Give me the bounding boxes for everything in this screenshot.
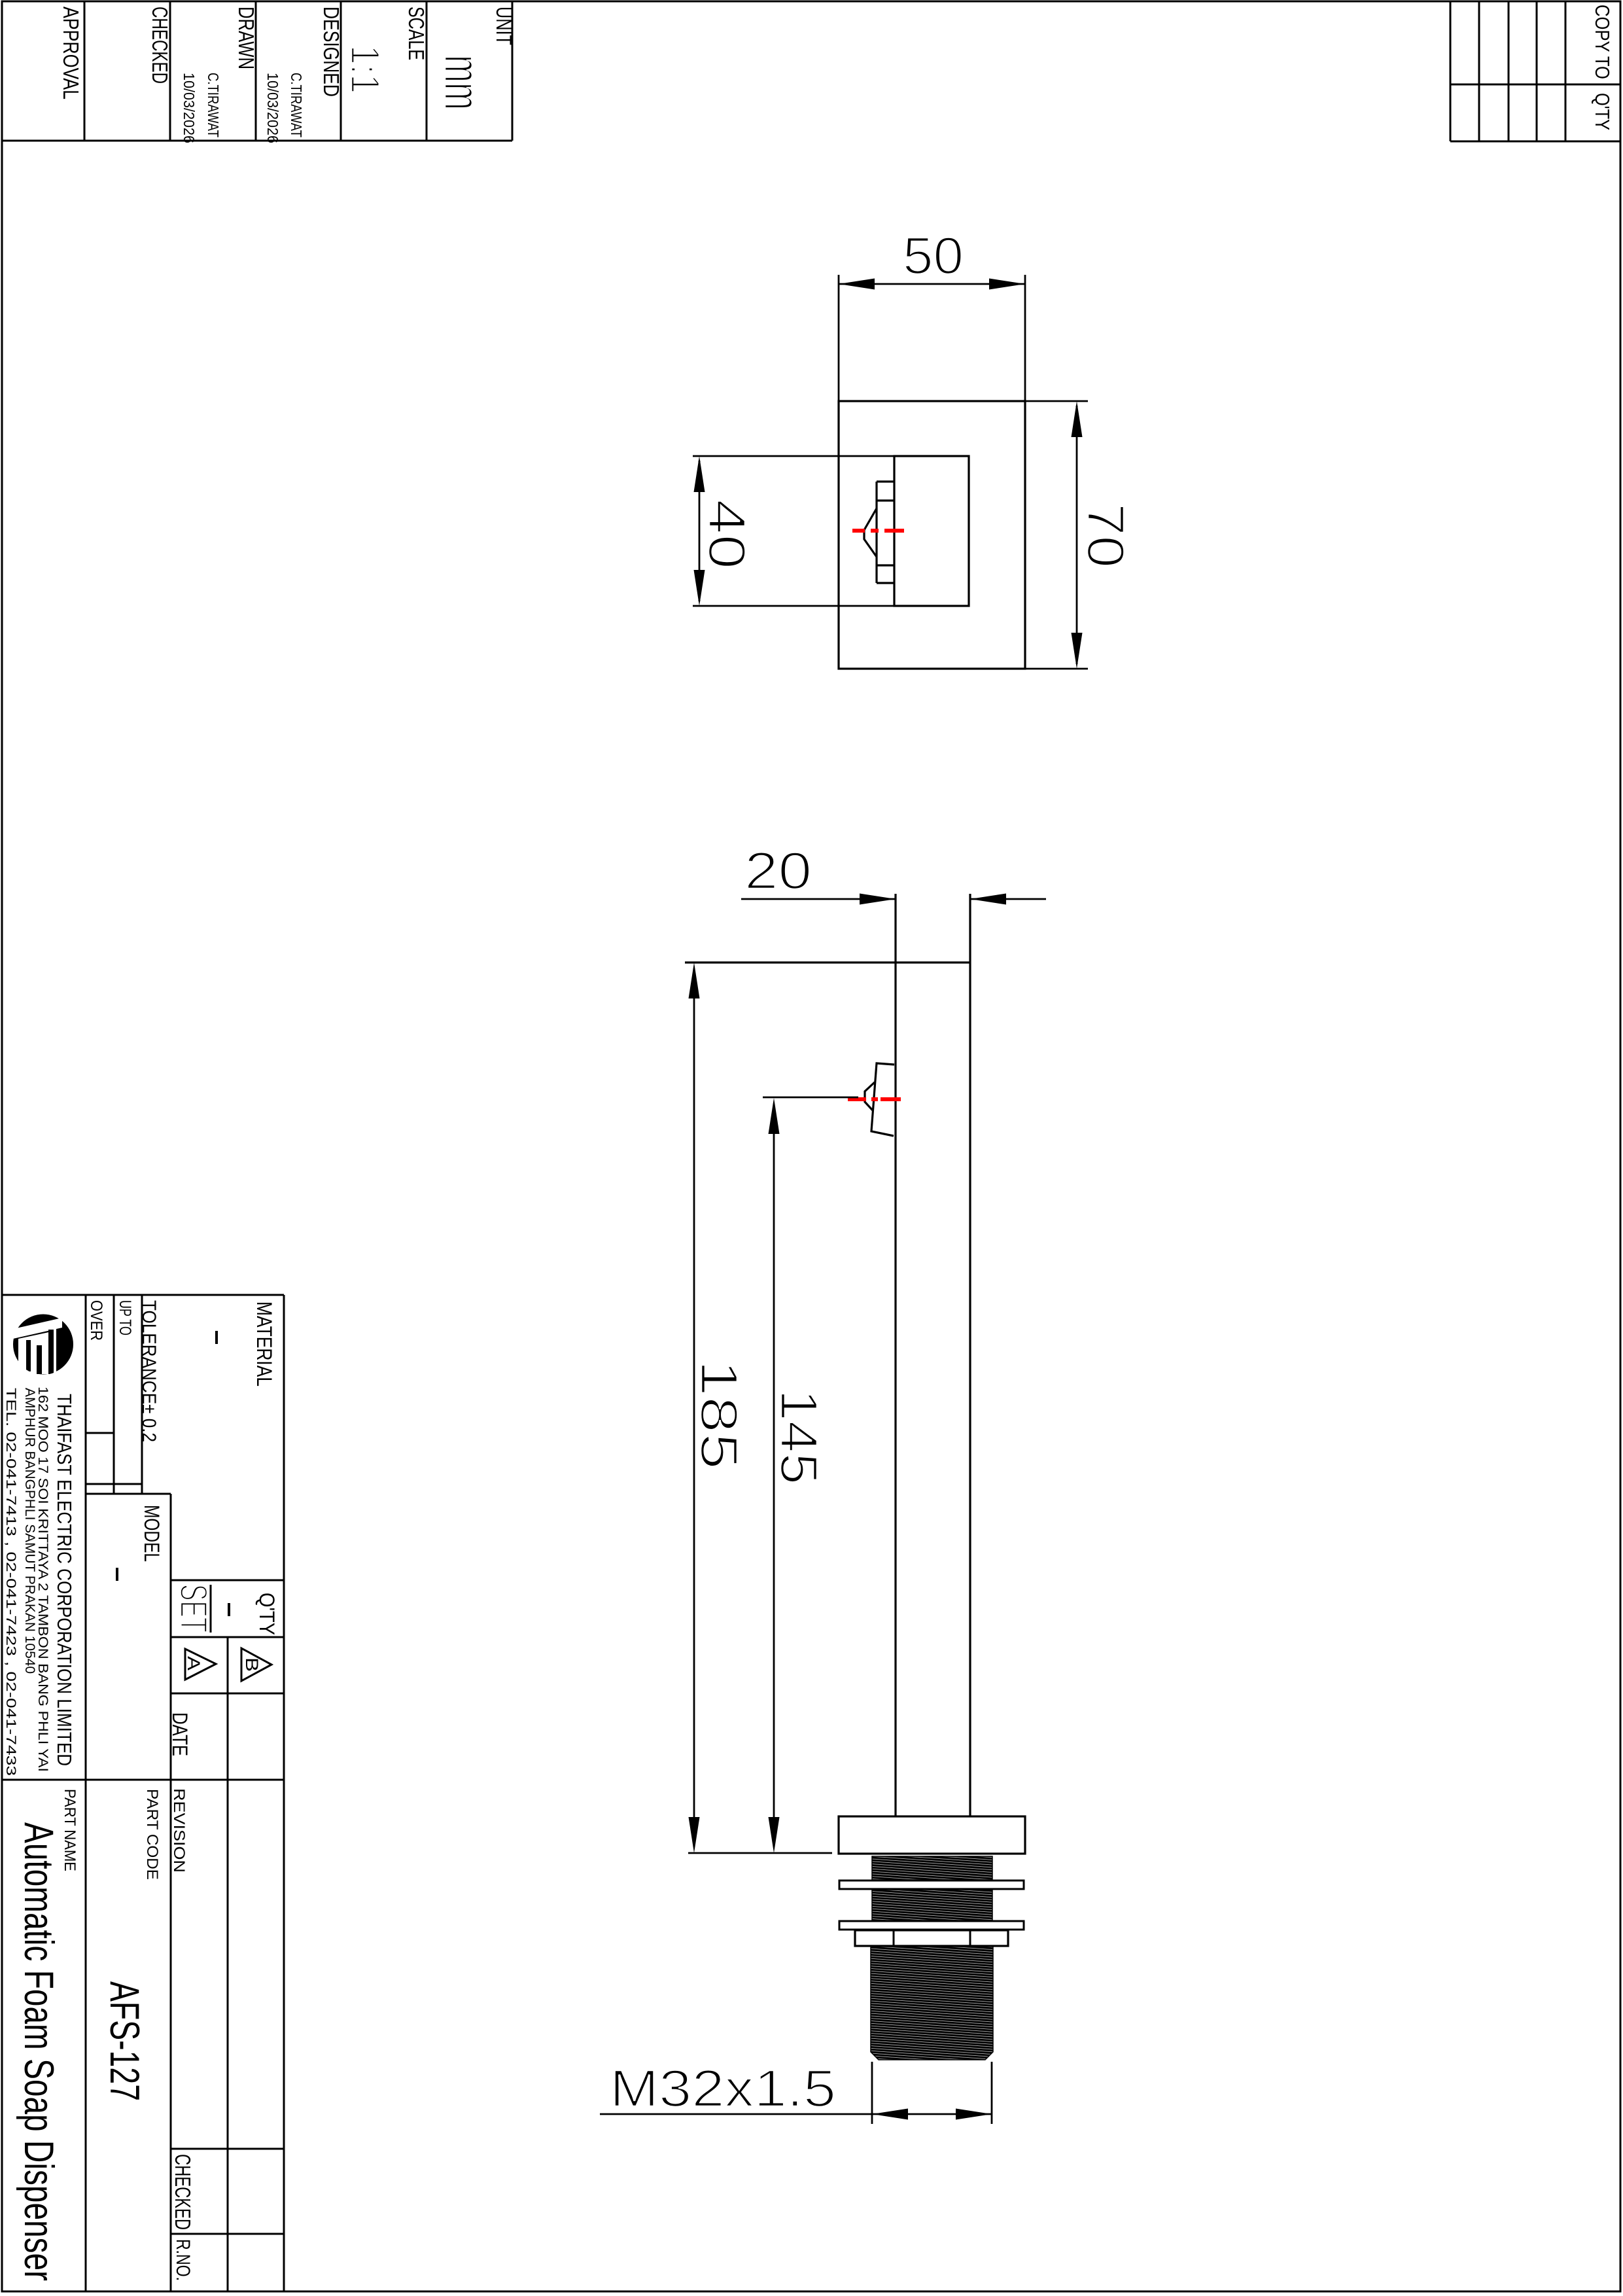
svg-text:THAIFAST ELECTRIC CORPORATION: THAIFAST ELECTRIC CORPORATION LIMITED [53,1394,76,1766]
svg-text:COPY TO: COPY TO [1591,5,1614,79]
svg-text:TOLERANCE± 0.2: TOLERANCE± 0.2 [138,1300,160,1442]
svg-text:mm: mm [434,55,491,110]
svg-text:M32x1.5: M32x1.5 [610,2059,836,2117]
svg-text:MATERIAL: MATERIAL [253,1301,276,1386]
svg-text:40: 40 [698,499,756,569]
svg-text:APPROVAL: APPROVAL [59,7,83,99]
svg-text:Automatic Foam Soap Dispenser: Automatic Foam Soap Dispenser [16,1822,61,2281]
svg-text:PART CODE: PART CODE [143,1789,161,1880]
svg-text:185: 185 [690,1360,748,1470]
svg-text:DESIGNED: DESIGNED [319,7,343,97]
svg-text:PART NAME: PART NAME [61,1789,79,1871]
svg-text:10/03/2026: 10/03/2026 [181,73,198,143]
svg-text:OVER: OVER [87,1300,105,1341]
svg-text:C.TIRAWAT: C.TIRAWAT [288,73,305,137]
svg-text:MODEL: MODEL [140,1505,164,1562]
svg-text:50: 50 [903,226,964,285]
svg-text:1:1: 1:1 [342,45,387,94]
svg-text:AFS-127: AFS-127 [101,1981,147,2101]
svg-text:CHECKED: CHECKED [148,7,172,84]
svg-text:DRAWN: DRAWN [234,7,258,69]
svg-text:CHECKED: CHECKED [171,2154,195,2230]
svg-text:SET: SET [172,1584,215,1633]
svg-text:C.TIRAWAT: C.TIRAWAT [205,73,222,137]
svg-text:Q'TY: Q'TY [255,1593,279,1635]
svg-text:R.NO.: R.NO. [172,2239,194,2281]
svg-text:B: B [242,1657,262,1672]
svg-text:UP TO: UP TO [116,1300,134,1335]
svg-text:10/03/2026: 10/03/2026 [264,73,281,143]
svg-text:A: A [184,1656,203,1670]
svg-text:AMPHUR BANGPHLI SAMUT PRAKAN 1: AMPHUR BANGPHLI SAMUT PRAKAN 10540 [22,1388,37,1674]
svg-text:20: 20 [744,841,812,900]
svg-text:162 MOO 17 SOI KRITTAYA 2 TAMB: 162 MOO 17 SOI KRITTAYA 2 TAMBON BANG PH… [35,1386,50,1772]
svg-text:UNIT: UNIT [492,7,516,45]
svg-text:TEL. 02-041-7413 , 02-041-7423: TEL. 02-041-7413 , 02-041-7423 , 02-041-… [3,1388,18,1776]
svg-text:DATE: DATE [168,1712,192,1756]
svg-text:REVISION: REVISION [170,1788,188,1873]
svg-text:70: 70 [1077,503,1135,568]
svg-text:SCALE: SCALE [404,7,428,60]
svg-text:Q'TY: Q'TY [1591,93,1614,130]
svg-text:145: 145 [770,1389,828,1485]
